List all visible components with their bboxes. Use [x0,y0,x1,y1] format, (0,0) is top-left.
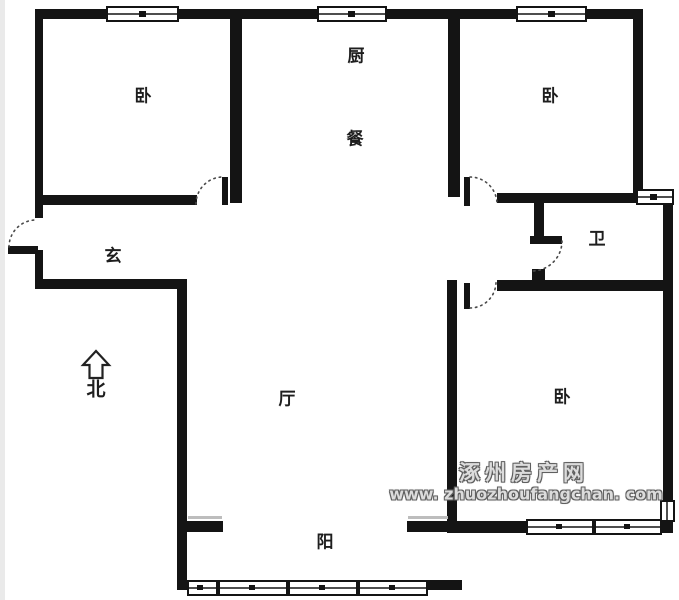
window-north-bedroom-nw [107,7,178,21]
window-bedroom-se-1 [527,520,593,534]
window-bedroom-se-2 [595,520,661,534]
floor-plan-drawing [0,0,679,600]
room-label-bedroom-nw: 卧 [135,89,152,106]
room-label-foyer: 玄 [105,249,122,266]
bedroom-nw-door-arc [196,177,223,204]
window-balcony-3 [289,581,357,595]
room-label-living: 厅 [279,392,296,409]
window-bedroom-se-corner [661,501,674,521]
bedroom-ne-door-leaf [464,177,470,206]
room-label-bedroom-ne: 卧 [542,89,559,106]
entrance-door-leaf [8,246,38,254]
bathroom-door-leaf [530,236,562,244]
bathroom-door-arc [532,241,562,271]
bedroom-ne-door-arc [470,177,497,204]
window-balcony-2 [219,581,287,595]
room-label-balcony: 阳 [317,535,334,552]
room-label-bathroom: 卫 [589,232,606,249]
north-arrow-icon [83,351,109,378]
window-bathroom-east [637,190,673,204]
window-balcony-1 [188,581,217,595]
bedroom-se-door-arc [470,282,496,308]
room-label-bedroom-se: 卧 [554,390,571,407]
entrance-door-arc [9,220,36,247]
bedroom-se-door-leaf [464,283,470,309]
room-label-dining: 餐 [347,132,364,149]
sill-lines [188,516,448,519]
outer-walls [35,9,673,590]
bedroom-nw-door-leaf [222,177,228,205]
compass-north-label: 北 [86,381,105,400]
window-north-kitchen [318,7,386,21]
floor-plan: 卧 厨 餐 卧 玄 卫 厅 卧 阳 北 涿州房产网 www. zhuozhouf… [0,0,679,600]
room-label-kitchen: 厨 [348,49,365,66]
window-balcony-4 [359,581,427,595]
window-north-bedroom-ne [517,7,586,21]
